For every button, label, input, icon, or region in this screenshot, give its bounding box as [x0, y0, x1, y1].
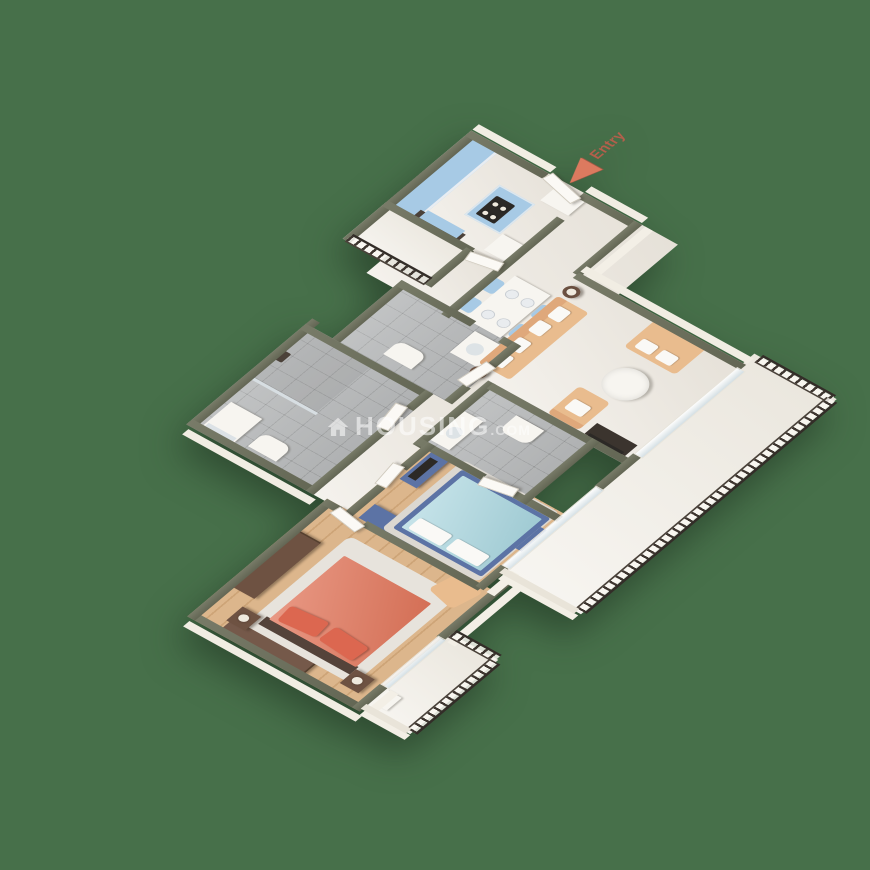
watermark-brand: HOUSING	[355, 413, 490, 439]
entry-label: Entry	[586, 129, 631, 162]
watermark-house-icon	[326, 415, 350, 439]
watermark: HOUSING .COM	[326, 413, 531, 439]
watermark-tld: .COM	[490, 423, 531, 437]
floorplan-page: { "scene": { "background_color": "#47704…	[0, 0, 870, 870]
